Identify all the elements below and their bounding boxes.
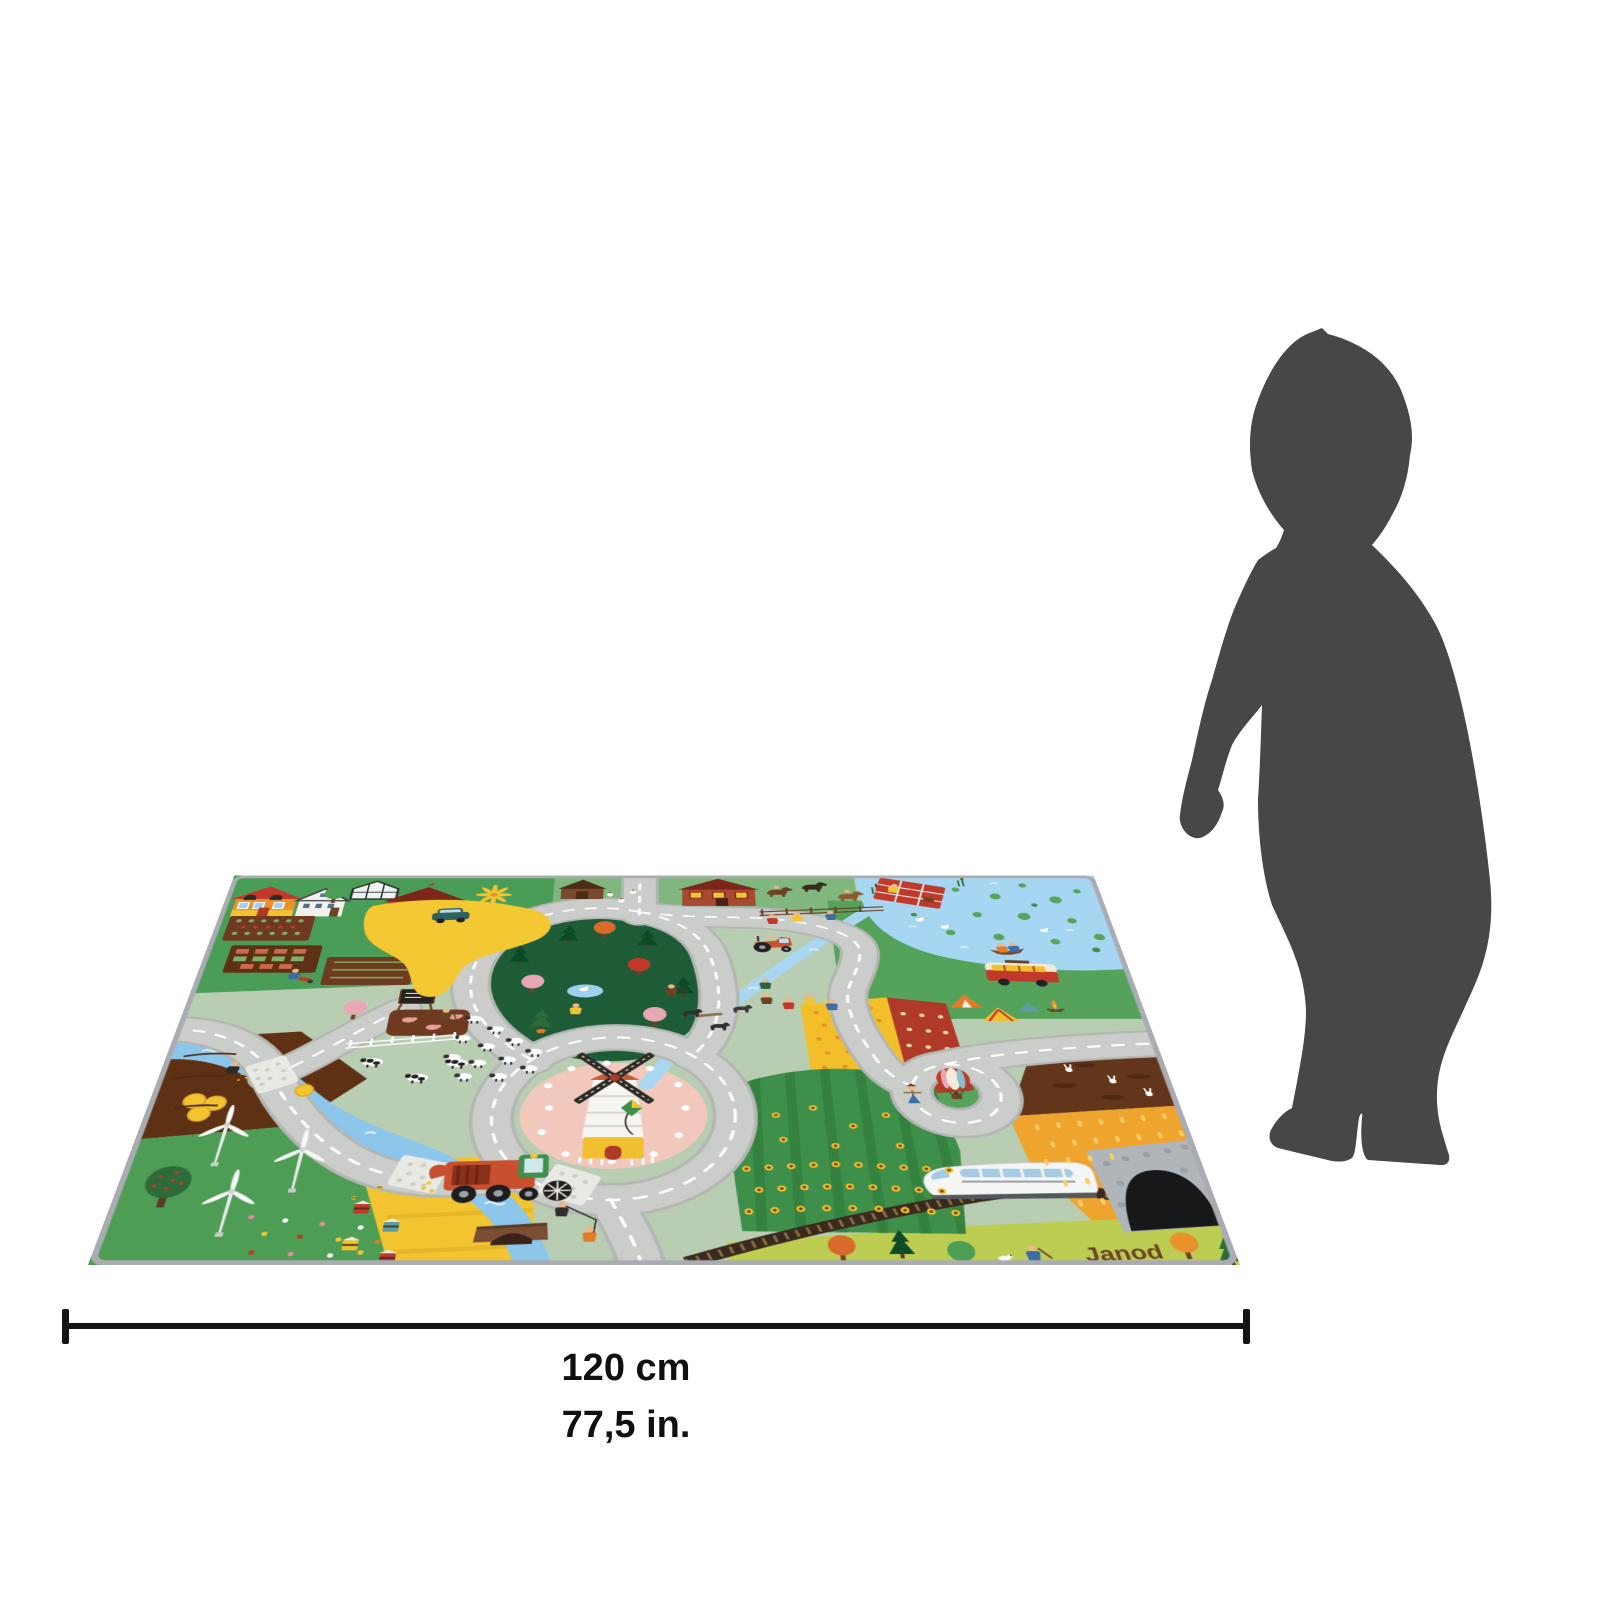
pig-pen bbox=[385, 1010, 471, 1036]
play-mat: Janod bbox=[88, 876, 1240, 1265]
dimension-label-in: 77,5 in. bbox=[426, 1397, 826, 1454]
dimension-labels: 120 cm 77,5 in. bbox=[426, 1340, 826, 1454]
dimension-tick-left bbox=[62, 1309, 69, 1344]
child-silhouette-figure bbox=[1170, 326, 1498, 1174]
play-mat-artwork: Janod bbox=[88, 876, 1240, 1265]
dimension-label-cm: 120 cm bbox=[426, 1340, 826, 1397]
dimension-tick-right bbox=[1243, 1309, 1250, 1344]
